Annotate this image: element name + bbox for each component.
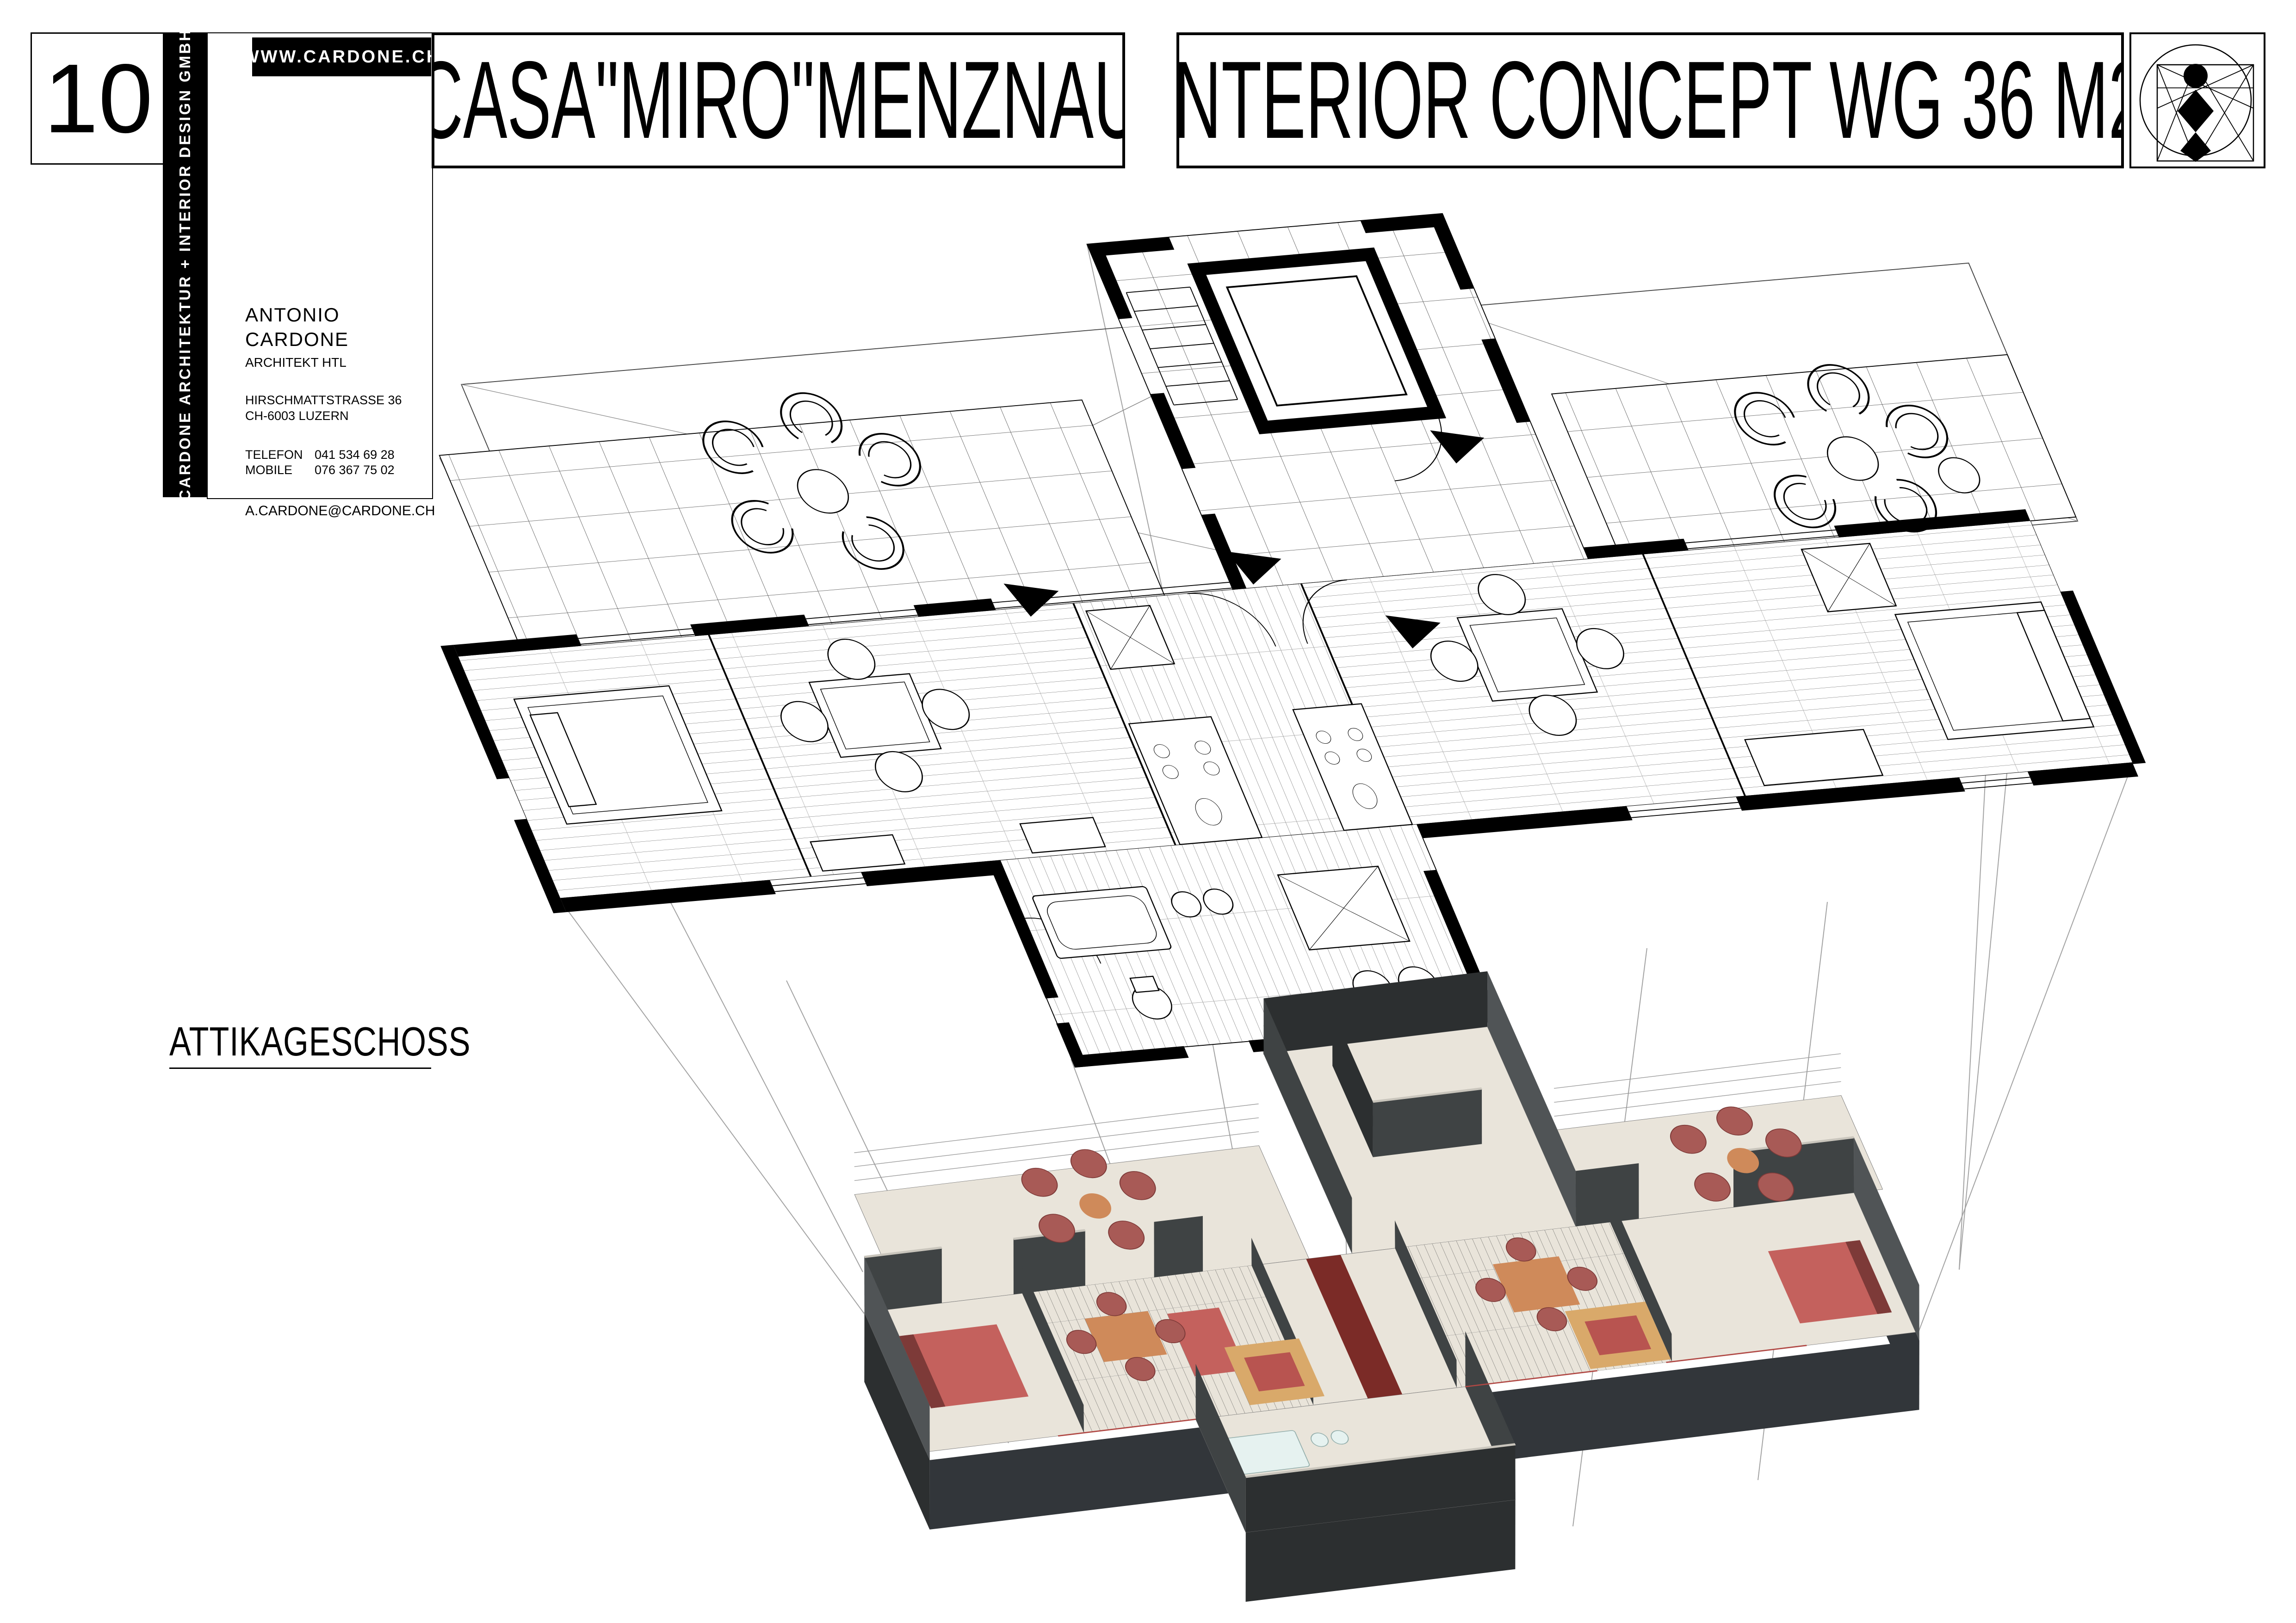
vitruvian-figure-icon xyxy=(2131,34,2260,163)
drawing-sheet: 10 CARDONE ARCHITEKTUR + INTERIOR DESIGN… xyxy=(0,0,2296,1623)
concept-title: INTERIOR CONCEPT WG 36 M2 xyxy=(1176,45,2124,155)
architect-telefon: TELEFON041 534 69 28 xyxy=(245,447,426,463)
brand-company: CARDONE ARCHITEKTUR + INTERIOR DESIGN GM… xyxy=(176,28,194,501)
architect-email: A.CARDONE@CARDONE.CH xyxy=(245,502,426,520)
model-3d xyxy=(724,935,2041,1623)
plan-2d xyxy=(300,172,2265,1106)
logo-box xyxy=(2129,32,2265,168)
floor-label-block: ATTIKAGESCHOSS xyxy=(169,1021,431,1069)
concept-title-box: INTERIOR CONCEPT WG 36 M2 xyxy=(1176,32,2124,168)
architect-street: HIRSCHMATTSTRASSE 36 xyxy=(245,393,426,408)
brand-bar: CARDONE ARCHITEKTUR + INTERIOR DESIGN GM… xyxy=(163,32,207,497)
sheet-number-box: 10 xyxy=(31,32,166,165)
architect-mobile: MOBILE076 367 75 02 xyxy=(245,463,426,478)
architect-info: ANTONIO CARDONE ARCHITEKT HTL HIRSCHMATT… xyxy=(245,303,426,520)
website-url: WWW.CARDONE.CH xyxy=(242,47,441,67)
project-title: CASA"MIRO"MENZNAU xyxy=(432,45,1125,155)
architect-title: ARCHITEKT HTL xyxy=(245,354,426,370)
architect-city: CH-6003 LUZERN xyxy=(245,408,426,424)
floor-label: ATTIKAGESCHOSS xyxy=(169,1021,470,1062)
sheet-number: 10 xyxy=(44,49,153,148)
architect-name: ANTONIO CARDONE xyxy=(245,303,426,352)
website-badge: WWW.CARDONE.CH xyxy=(252,37,431,76)
project-title-box: CASA"MIRO"MENZNAU xyxy=(432,32,1125,168)
